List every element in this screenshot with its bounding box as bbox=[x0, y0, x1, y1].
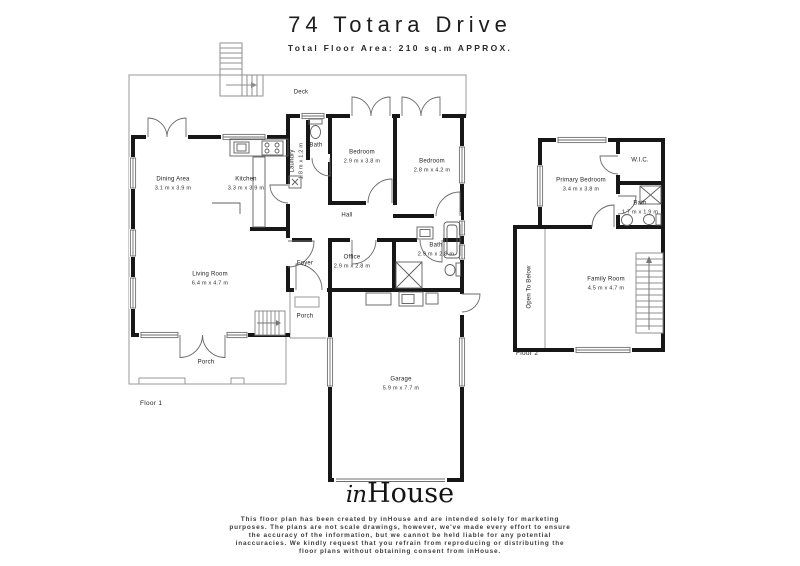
room-label-bedroom-1: Bedroom2.9 m x 3.8 m bbox=[344, 149, 381, 166]
external-stairs-icon bbox=[220, 43, 263, 96]
room-label-wic: W.I.C. bbox=[631, 157, 649, 166]
room-label-living-room: Living Room6.4 m x 4.7 m bbox=[192, 271, 229, 288]
room-label-family-room: Family Room4.5 m x 4.7 m bbox=[587, 276, 625, 293]
disclaimer-line: the accuracy of the information, but we … bbox=[180, 532, 620, 540]
room-label-kitchen: Kitchen3.3 m x 3.9 m bbox=[228, 176, 265, 193]
room-label-hall: Hall bbox=[341, 212, 352, 221]
dining-counter-icon bbox=[212, 203, 240, 214]
room-label-bedroom-2: Bedroom2.8 m x 4.2 m bbox=[414, 158, 451, 175]
windows bbox=[130, 113, 630, 481]
floor2-caption: Floor 2 bbox=[516, 350, 538, 357]
room-label-deck: Deck bbox=[294, 89, 308, 98]
inhouse-logo: inHouse bbox=[0, 480, 800, 507]
room-label-bath-floor2: Bath1.7 m x 1.9 m bbox=[622, 200, 659, 217]
porch-step-icon bbox=[231, 378, 244, 384]
room-label-porch-rear: Porch bbox=[198, 359, 215, 368]
room-label-office: Office2.9 m x 2.8 m bbox=[334, 254, 371, 271]
toilet-icon bbox=[309, 119, 322, 139]
room-label-dining-area: Dining Area3.1 m x 3.9 m bbox=[155, 176, 192, 193]
garage-bench-icon bbox=[366, 292, 438, 306]
disclaimer-line: purposes. The plans are not scale drawin… bbox=[180, 524, 620, 532]
disclaimer-line: This floor plan has been created by inHo… bbox=[180, 516, 620, 524]
floor1-caption: Floor 1 bbox=[140, 400, 162, 407]
stairs-floor1-icon bbox=[255, 311, 285, 335]
room-label-open-to-below: Open To Below bbox=[526, 265, 535, 308]
wall-openings bbox=[129, 112, 632, 484]
room-label-bath-main: Bath2.9 m x 2.8 m bbox=[418, 242, 455, 259]
stairs-floor2-icon bbox=[636, 253, 663, 333]
room-label-primary-bedroom: Primary Bedroom3.4 m x 3.8 m bbox=[556, 177, 606, 194]
room-label-garage: Garage5.9 m x 7.7 m bbox=[383, 376, 420, 393]
room-label-foyer: Foyer bbox=[297, 260, 313, 269]
logo-script-part: in bbox=[346, 482, 366, 508]
room-label-bath-upper: Bath bbox=[309, 142, 322, 151]
porch-steps-icon bbox=[139, 378, 185, 384]
front-step-icon bbox=[295, 297, 319, 307]
room-label-laundry: Laundry1.8 m x 1.2 m bbox=[289, 143, 306, 180]
logo-serif-part: House bbox=[367, 478, 454, 509]
disclaimer-line: floor plans without obtaining consent fr… bbox=[180, 548, 620, 556]
disclaimer-text: This floor plan has been created by inHo… bbox=[180, 516, 620, 556]
room-label-porch-front: Porch bbox=[297, 313, 314, 322]
disclaimer-line: inaccuracies. We kindly request that you… bbox=[180, 540, 620, 548]
walls bbox=[131, 114, 665, 482]
floor-plan-page: 74 Totara Drive Total Floor Area: 210 sq… bbox=[0, 0, 800, 566]
